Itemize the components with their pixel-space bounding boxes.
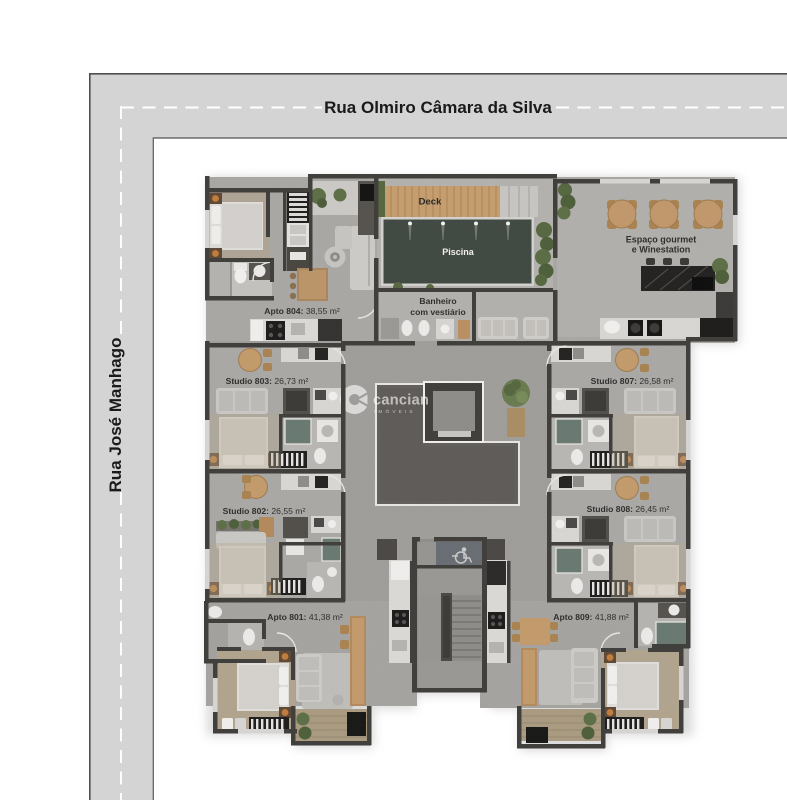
svg-text:Rua José Manhago: Rua José Manhago [106,338,125,493]
svg-text:Rua Olmiro Câmara da Silva: Rua Olmiro Câmara da Silva [324,98,552,117]
